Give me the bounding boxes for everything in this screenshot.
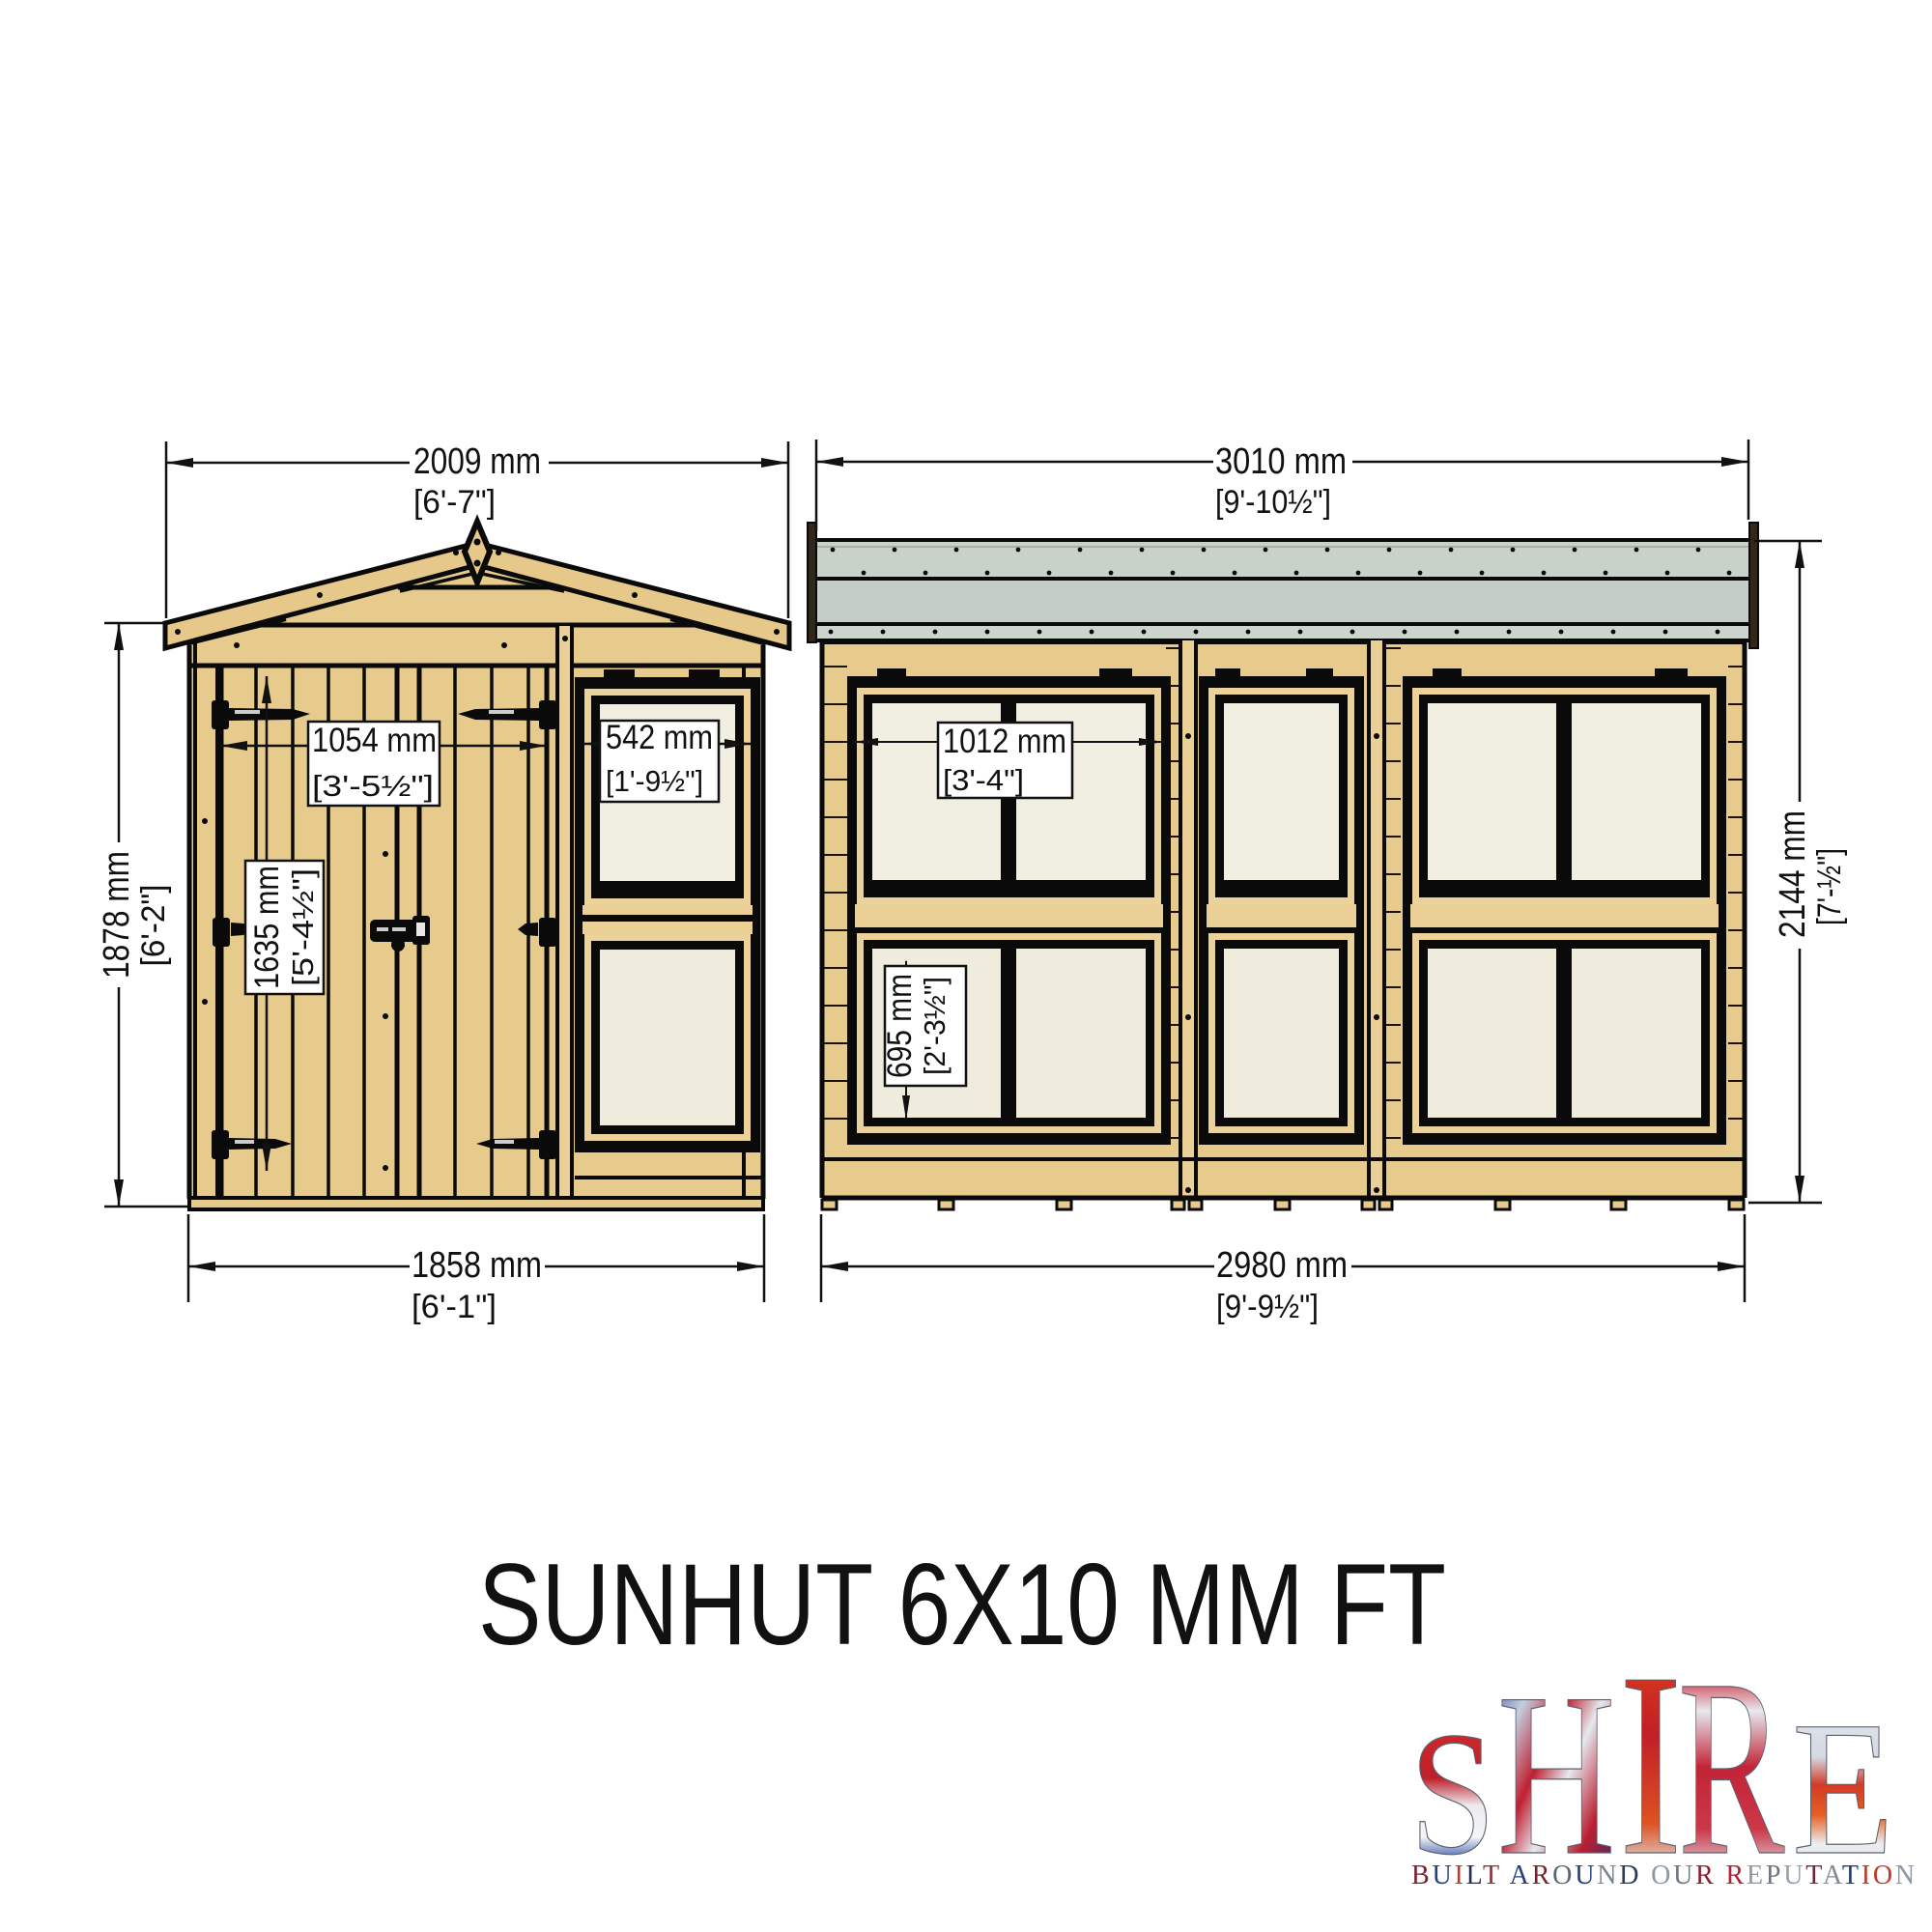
svg-text:1878 mm: 1878 mm <box>97 851 137 979</box>
svg-text:695 mm: 695 mm <box>881 974 919 1078</box>
svg-text:[7'-½"]: [7'-½"] <box>1811 848 1848 925</box>
svg-text:1054 mm: 1054 mm <box>312 722 437 759</box>
svg-text:542 mm: 542 mm <box>606 719 713 756</box>
svg-text:1635 mm: 1635 mm <box>248 866 286 989</box>
svg-text:[1'-9½"]: [1'-9½"] <box>606 764 703 798</box>
svg-text:1012 mm: 1012 mm <box>943 723 1066 760</box>
svg-text:[6'-2"]: [6'-2"] <box>135 885 172 967</box>
svg-text:2980 mm: 2980 mm <box>1216 1245 1348 1286</box>
svg-text:BUILT AROUND OUR REPUTATION: BUILT AROUND OUR REPUTATION <box>1411 1861 1918 1890</box>
svg-text:2144 mm: 2144 mm <box>1773 810 1813 938</box>
svg-text:[3'-5½"]: [3'-5½"] <box>312 769 434 803</box>
svg-text:[9'-10½"]: [9'-10½"] <box>1215 484 1331 521</box>
svg-text:2009 mm: 2009 mm <box>413 441 541 482</box>
svg-text:[5'-4½"]: [5'-4½"] <box>286 868 320 986</box>
svg-text:[2'-3½"]: [2'-3½"] <box>918 977 952 1075</box>
svg-text:3010 mm: 3010 mm <box>1215 441 1347 482</box>
svg-text:[3'-4"]: [3'-4"] <box>943 763 1024 797</box>
svg-text:[6'-1"]: [6'-1"] <box>412 1289 497 1325</box>
svg-text:1858 mm: 1858 mm <box>412 1245 542 1286</box>
svg-text:[9'-9½"]: [9'-9½"] <box>1216 1289 1319 1325</box>
svg-text:[6'-7"]: [6'-7"] <box>413 484 496 521</box>
svg-text:SUNHUT 6X10 MM FT: SUNHUT 6X10 MM FT <box>478 1540 1446 1669</box>
